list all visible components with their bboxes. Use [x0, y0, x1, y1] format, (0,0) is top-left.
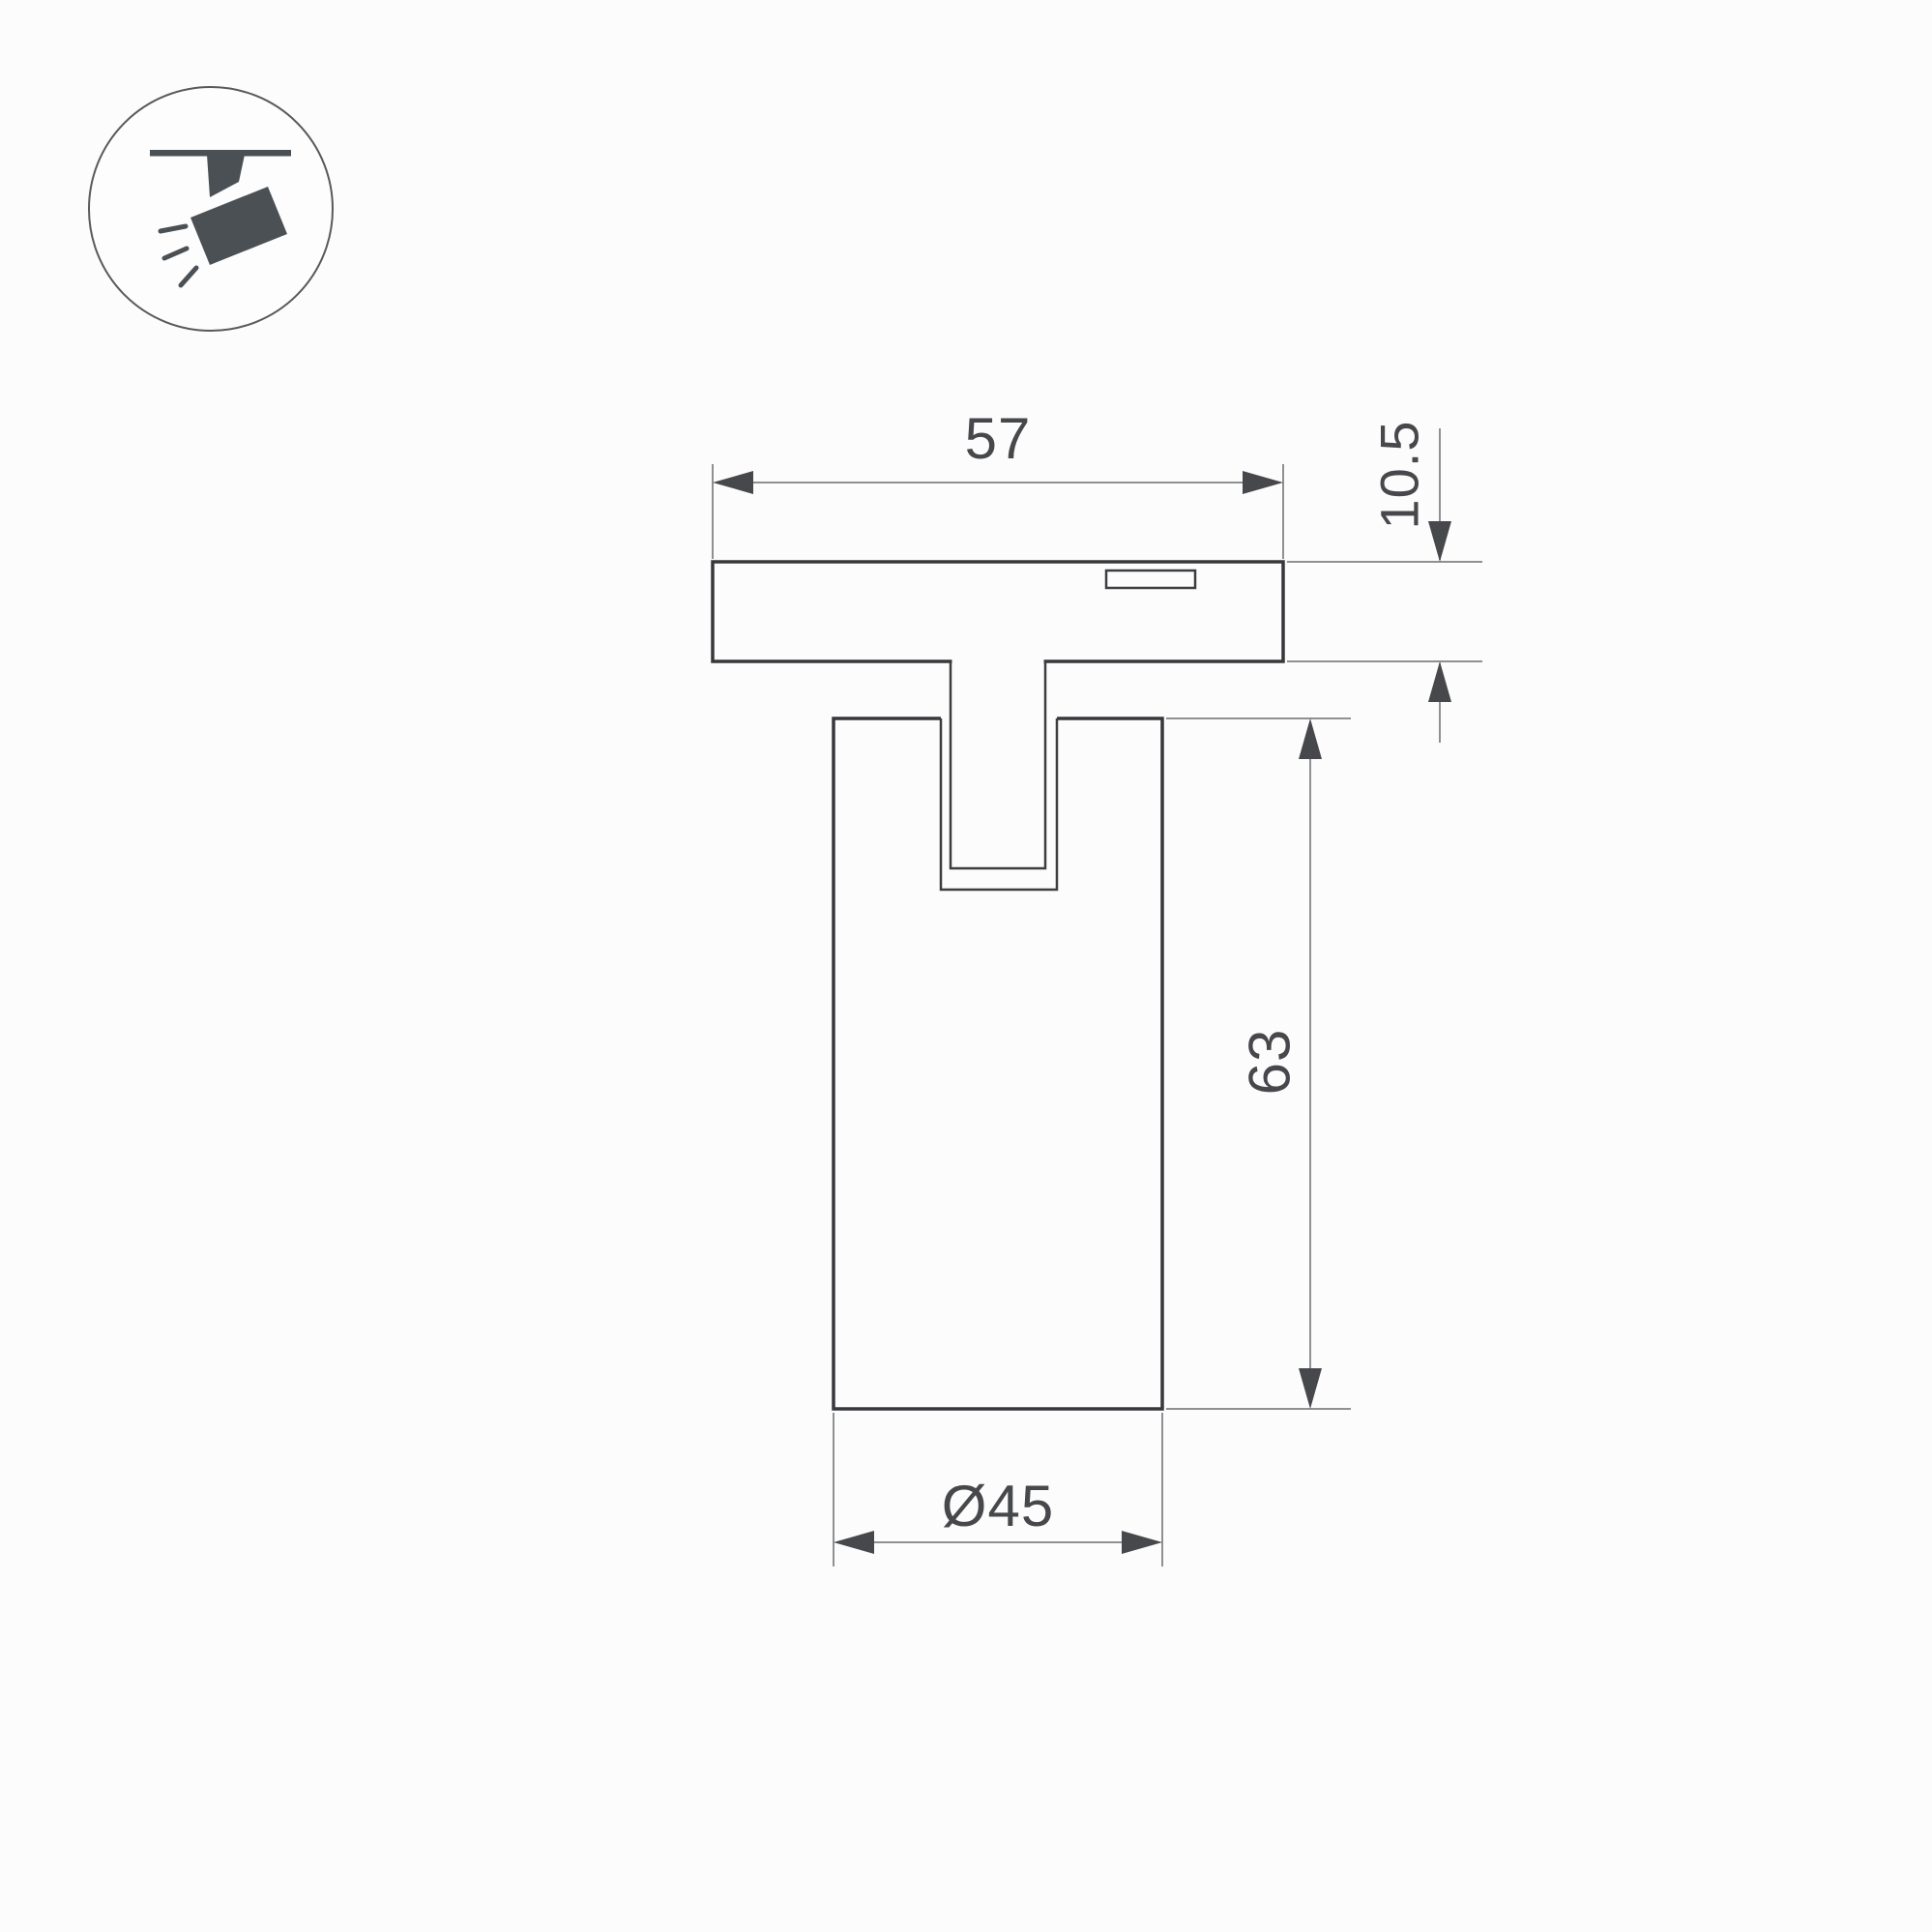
- base-slot-detail: [1106, 571, 1195, 588]
- badge-circle: [89, 87, 333, 331]
- dimension-body-height: 63: [1166, 718, 1351, 1409]
- spotlight-dimension-drawing: 57 10.5 63 Ø45: [0, 0, 1932, 1932]
- fixture-outline: [713, 562, 1283, 1409]
- dimension-base-height: 10.5: [1287, 421, 1482, 744]
- dimension-label-base-height: 10.5: [1369, 421, 1430, 530]
- arrow-up-icon: [1299, 718, 1322, 759]
- dimension-label-track-width: 57: [965, 406, 1032, 471]
- dimension-body-diameter: Ø45: [834, 1413, 1162, 1566]
- track-spotlight-badge: [89, 87, 333, 331]
- arrow-right-icon: [1122, 1531, 1162, 1554]
- arrow-right-icon: [1243, 471, 1283, 494]
- dimension-label-body-height: 63: [1238, 1029, 1303, 1096]
- track-base-outline: [713, 562, 1283, 661]
- arrow-left-icon: [713, 471, 753, 494]
- mounting-stem-fill: [952, 654, 1044, 866]
- dimension-label-body-diameter: Ø45: [942, 1474, 1054, 1538]
- arrow-down-icon: [1299, 1368, 1322, 1409]
- arrow-up-icon: [1428, 661, 1451, 702]
- arrow-down-icon: [1428, 521, 1451, 562]
- technical-drawing-page: 57 10.5 63 Ø45: [0, 0, 1932, 1932]
- dimension-track-width: 57: [713, 406, 1283, 559]
- arrow-left-icon: [834, 1531, 874, 1554]
